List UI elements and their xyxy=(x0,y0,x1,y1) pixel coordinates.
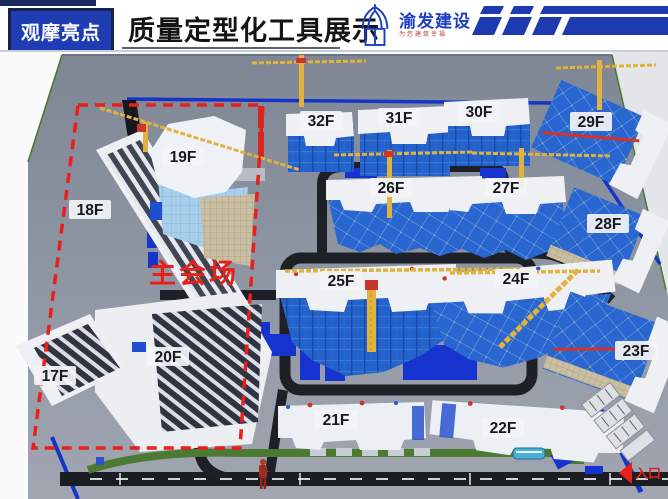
building-label-20f: 20F xyxy=(147,347,189,366)
badge-label: 观摩亮点 xyxy=(21,18,101,45)
svg-text:30F: 30F xyxy=(466,104,493,121)
building-label-24f: 24F xyxy=(495,269,537,288)
svg-text:25F: 25F xyxy=(328,273,355,290)
svg-text:23F: 23F xyxy=(623,343,650,360)
logo-tagline: 为您建筑幸福 xyxy=(399,31,471,39)
entrance-label: 入口 xyxy=(635,466,661,481)
svg-text:26F: 26F xyxy=(378,180,405,197)
svg-text:32F: 32F xyxy=(308,113,335,130)
highlight-badge: 观摩亮点 xyxy=(8,8,114,54)
building-label-22f: 22F xyxy=(482,418,524,437)
building-label-17f: 17F xyxy=(34,366,76,385)
svg-text:20F: 20F xyxy=(155,349,182,366)
building-label-18f: 18F xyxy=(69,200,111,219)
building-label-19f: 19F xyxy=(162,147,204,166)
svg-text:28F: 28F xyxy=(595,216,622,233)
svg-text:19F: 19F xyxy=(170,149,197,166)
svg-text:31F: 31F xyxy=(386,110,413,127)
svg-text:27F: 27F xyxy=(493,180,520,197)
svg-text:17F: 17F xyxy=(42,368,69,385)
venue-label: 主会场 xyxy=(149,259,239,289)
building-label-29f: 29F xyxy=(570,112,612,131)
company-logo: 渝发建设 为您建筑幸福 xyxy=(356,1,471,51)
slide-header: 观摩亮点 质量定型化工具展示 渝发建设 为您建筑幸福 xyxy=(0,0,668,52)
building-label-30f: 30F xyxy=(458,102,500,121)
header-top-strip xyxy=(0,0,96,6)
site-plan-render: 17F 18F 19F 20F 21F 22F 23F 24F 25F 26F … xyxy=(0,52,668,499)
slide: 观摩亮点 质量定型化工具展示 渝发建设 为您建筑幸福 xyxy=(0,0,668,499)
monument-icon xyxy=(356,2,394,50)
svg-text:22F: 22F xyxy=(490,420,517,437)
building-label-27f: 27F xyxy=(485,178,527,197)
slide-title: 质量定型化工具展示 xyxy=(128,9,380,48)
building-label-28f: 28F xyxy=(587,214,629,233)
logo-name: 渝发建设 xyxy=(399,13,471,31)
building-label-23f: 23F xyxy=(615,341,657,360)
title-underline xyxy=(122,47,340,49)
building-label-21f: 21F xyxy=(315,410,357,429)
decor-stripes xyxy=(470,0,668,40)
svg-text:29F: 29F xyxy=(578,114,605,131)
svg-text:21F: 21F xyxy=(323,412,350,429)
building-label-25f: 25F xyxy=(320,271,362,290)
building-label-31f: 31F xyxy=(378,108,420,127)
svg-text:24F: 24F xyxy=(503,271,530,288)
shuttle-bus xyxy=(513,448,545,459)
building-label-26f: 26F xyxy=(370,178,412,197)
building-label-32f: 32F xyxy=(300,111,342,130)
svg-text:18F: 18F xyxy=(77,202,104,219)
